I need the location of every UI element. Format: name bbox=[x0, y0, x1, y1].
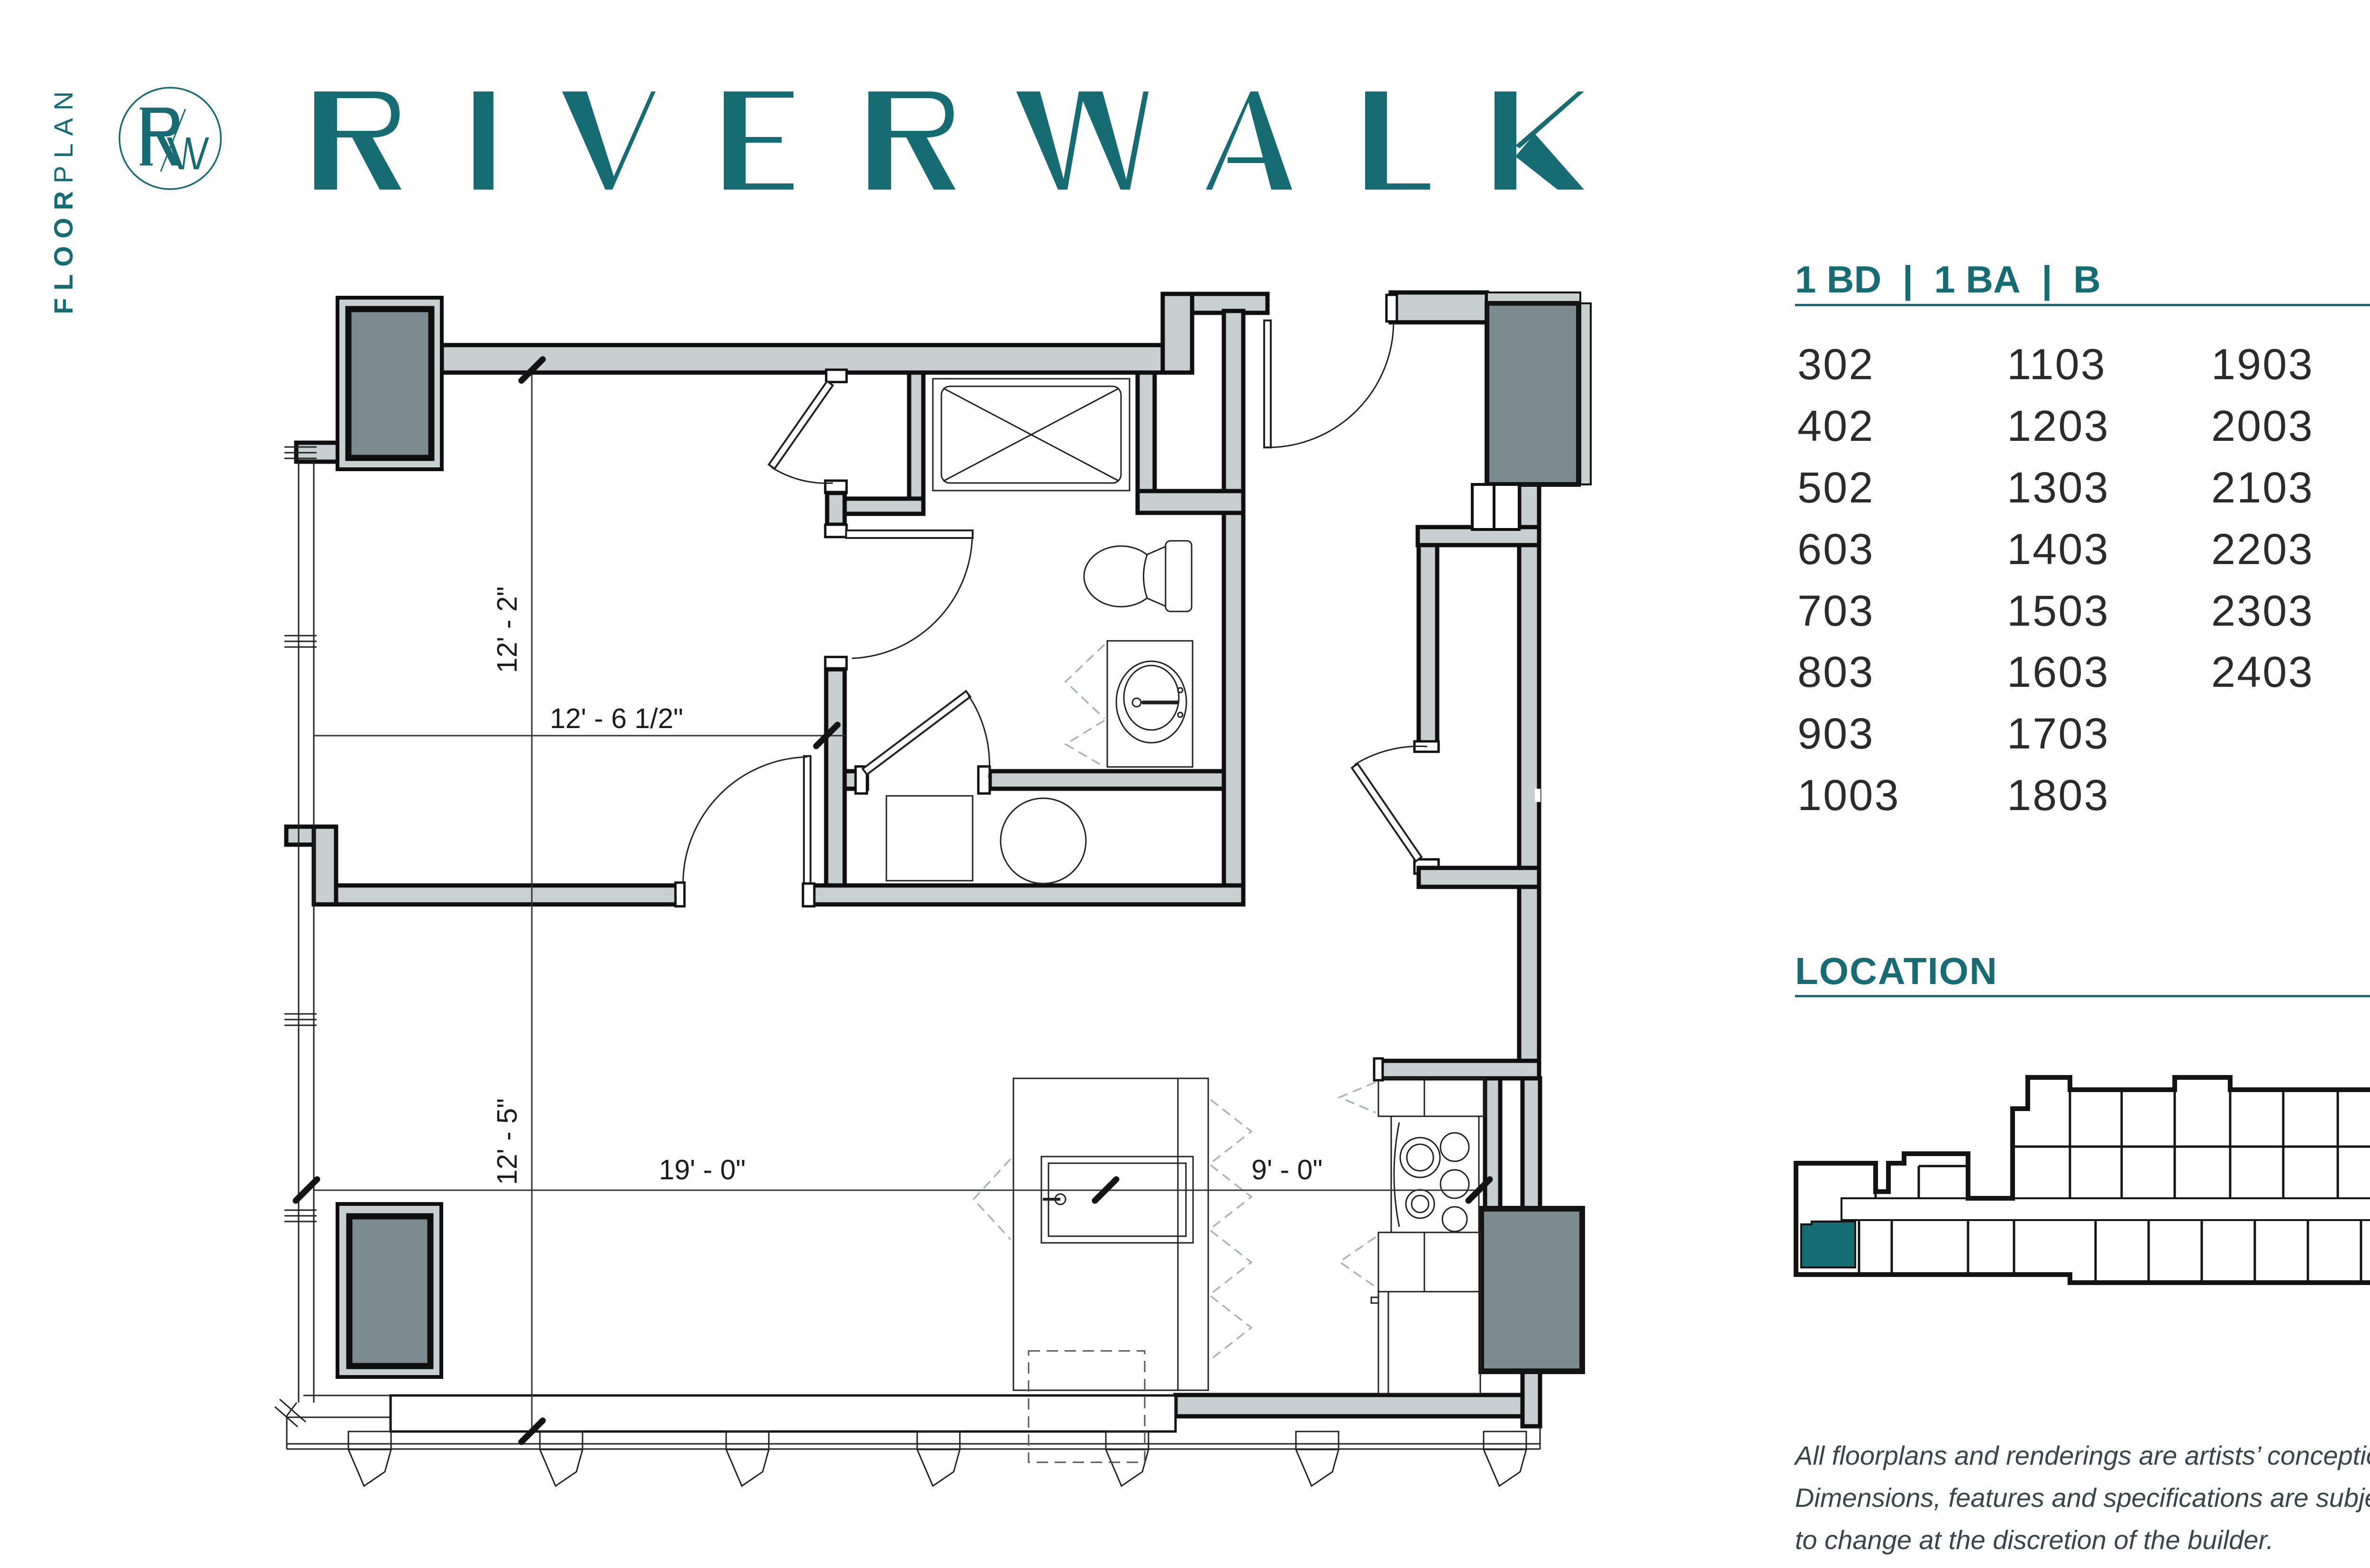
svg-text:1803: 1803 bbox=[2007, 771, 2110, 820]
svg-text:FLOORPLAN: FLOORPLAN bbox=[48, 84, 78, 314]
svg-text:1503: 1503 bbox=[2007, 587, 2110, 635]
svg-text:1103: 1103 bbox=[2007, 340, 2106, 389]
svg-text:to change at the discretion of: to change at the discretion of the build… bbox=[1795, 1525, 2274, 1555]
svg-text:803: 803 bbox=[1797, 648, 1875, 696]
svg-text:Dimensions, features and speci: Dimensions, features and specifications … bbox=[1795, 1483, 2370, 1513]
svg-text:2003: 2003 bbox=[2211, 402, 2314, 450]
svg-text:1203: 1203 bbox=[2007, 402, 2110, 450]
svg-text:9' - 0": 9' - 0" bbox=[1251, 1154, 1322, 1185]
svg-text:2103: 2103 bbox=[2211, 464, 2314, 512]
svg-text:LOCATION: LOCATION bbox=[1795, 950, 1998, 992]
svg-text:703: 703 bbox=[1797, 587, 1875, 635]
svg-text:302: 302 bbox=[1797, 340, 1875, 389]
svg-text:2303: 2303 bbox=[2211, 587, 2314, 635]
svg-text:1903: 1903 bbox=[2211, 340, 2314, 389]
svg-text:1003: 1003 bbox=[1797, 771, 1900, 820]
svg-text:903: 903 bbox=[1797, 710, 1875, 758]
svg-text:502: 502 bbox=[1797, 464, 1875, 512]
svg-text:2403: 2403 bbox=[2211, 648, 2314, 696]
svg-text:All floorplans and renderings: All floorplans and renderings are artist… bbox=[1794, 1440, 2370, 1470]
svg-text:1303: 1303 bbox=[2007, 464, 2110, 512]
svg-text:12' - 6 1/2": 12' - 6 1/2" bbox=[550, 703, 684, 734]
svg-text:1403: 1403 bbox=[2007, 525, 2110, 574]
svg-text:12' - 5": 12' - 5" bbox=[492, 1098, 523, 1185]
svg-text:2203: 2203 bbox=[2211, 525, 2314, 574]
svg-text:402: 402 bbox=[1797, 402, 1875, 450]
svg-text:603: 603 bbox=[1797, 525, 1875, 574]
svg-text:1603: 1603 bbox=[2007, 648, 2110, 696]
svg-text:1 BD | 1 BA | B: 1 BD | 1 BA | B bbox=[1795, 258, 2101, 301]
svg-text:12' - 2": 12' - 2" bbox=[492, 586, 523, 673]
svg-text:19' - 0": 19' - 0" bbox=[659, 1154, 746, 1185]
svg-text:1703: 1703 bbox=[2007, 710, 2110, 758]
